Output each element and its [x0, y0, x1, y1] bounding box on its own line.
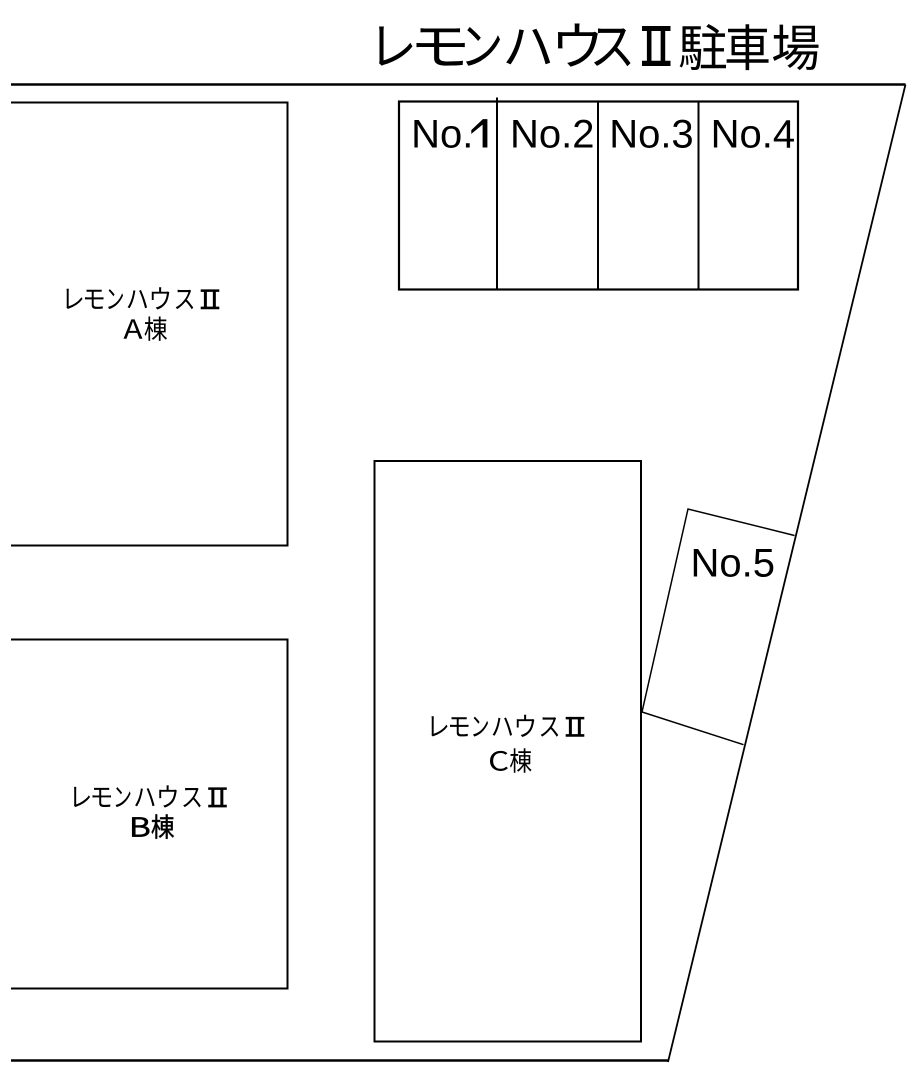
- svg-text:No.2: No.2: [510, 113, 595, 157]
- svg-text:No.3: No.3: [609, 113, 694, 157]
- svg-text:No.: No.: [411, 113, 473, 157]
- svg-text:No.4: No.4: [711, 113, 796, 157]
- svg-text:No.5: No.5: [691, 542, 776, 586]
